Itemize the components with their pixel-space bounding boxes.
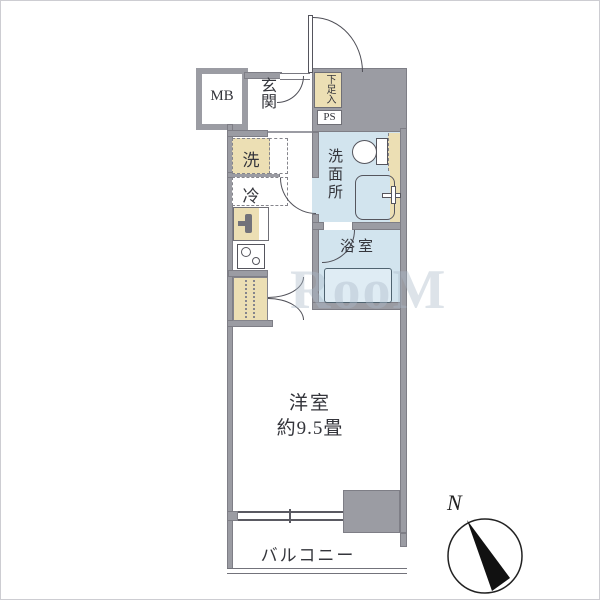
shoe-box-label: 下足入 — [322, 74, 337, 108]
bathtub-icon — [324, 268, 392, 303]
toilet-tank-icon — [376, 138, 388, 165]
main-room-size-label: 約9.5畳 — [240, 413, 380, 440]
closet-door-arc-top — [268, 277, 304, 298]
bath-wall-bottom — [312, 302, 407, 310]
stove — [237, 244, 265, 269]
bathroom-label: 浴室 — [334, 235, 382, 256]
balcony-rail — [227, 568, 407, 574]
pillar-bottom-right — [343, 490, 400, 533]
fridge-label: 冷 — [232, 182, 270, 207]
pipe-space-label: PS — [317, 110, 342, 125]
window-left-stub — [227, 511, 238, 521]
closet-hanger-dots-1 — [245, 280, 247, 318]
washroom-wall-left-upper — [312, 132, 319, 178]
main-room-label: 洋室 — [240, 388, 380, 415]
wall-above-washer — [227, 130, 268, 137]
closet — [233, 277, 268, 321]
wall-below-stove — [228, 270, 268, 277]
closet-door-arc-bottom — [268, 298, 304, 320]
vanity-faucet-v-icon — [391, 186, 396, 204]
toilet-counter — [388, 133, 400, 171]
washer-label: 洗 — [232, 146, 270, 171]
balcony-wall-right — [400, 533, 407, 547]
entrance-door-swing-arc — [313, 17, 363, 72]
hall-door-swing-arc — [280, 178, 316, 214]
bath-wall-left-stub — [312, 222, 324, 230]
closet-hanger-dots-2 — [253, 280, 255, 318]
bath-wall-right — [352, 222, 407, 230]
toilet-bowl-icon — [352, 140, 377, 164]
wall-right-exterior — [400, 128, 407, 533]
balcony-label: バルコニー — [233, 541, 383, 566]
washroom-label: 洗面所 — [324, 148, 345, 218]
stove-burner-large-icon — [241, 247, 251, 257]
mb-label: MB — [196, 88, 248, 105]
kitchen-faucet-handle-icon — [238, 221, 247, 226]
genkan-label: 玄関 — [254, 77, 278, 117]
floor-plan: MB 玄関 下足入 PS 洗 冷 洗面所 浴室 洋室 約9.5畳 バルコニー N… — [0, 0, 600, 600]
balcony-window-center-tick — [289, 509, 291, 523]
genkan-step-line — [268, 131, 312, 133]
stove-burner-small-icon — [252, 257, 260, 265]
genkan-inner-door-arc — [277, 76, 304, 103]
compass-icon — [440, 490, 555, 600]
wall-below-closet — [227, 320, 273, 327]
